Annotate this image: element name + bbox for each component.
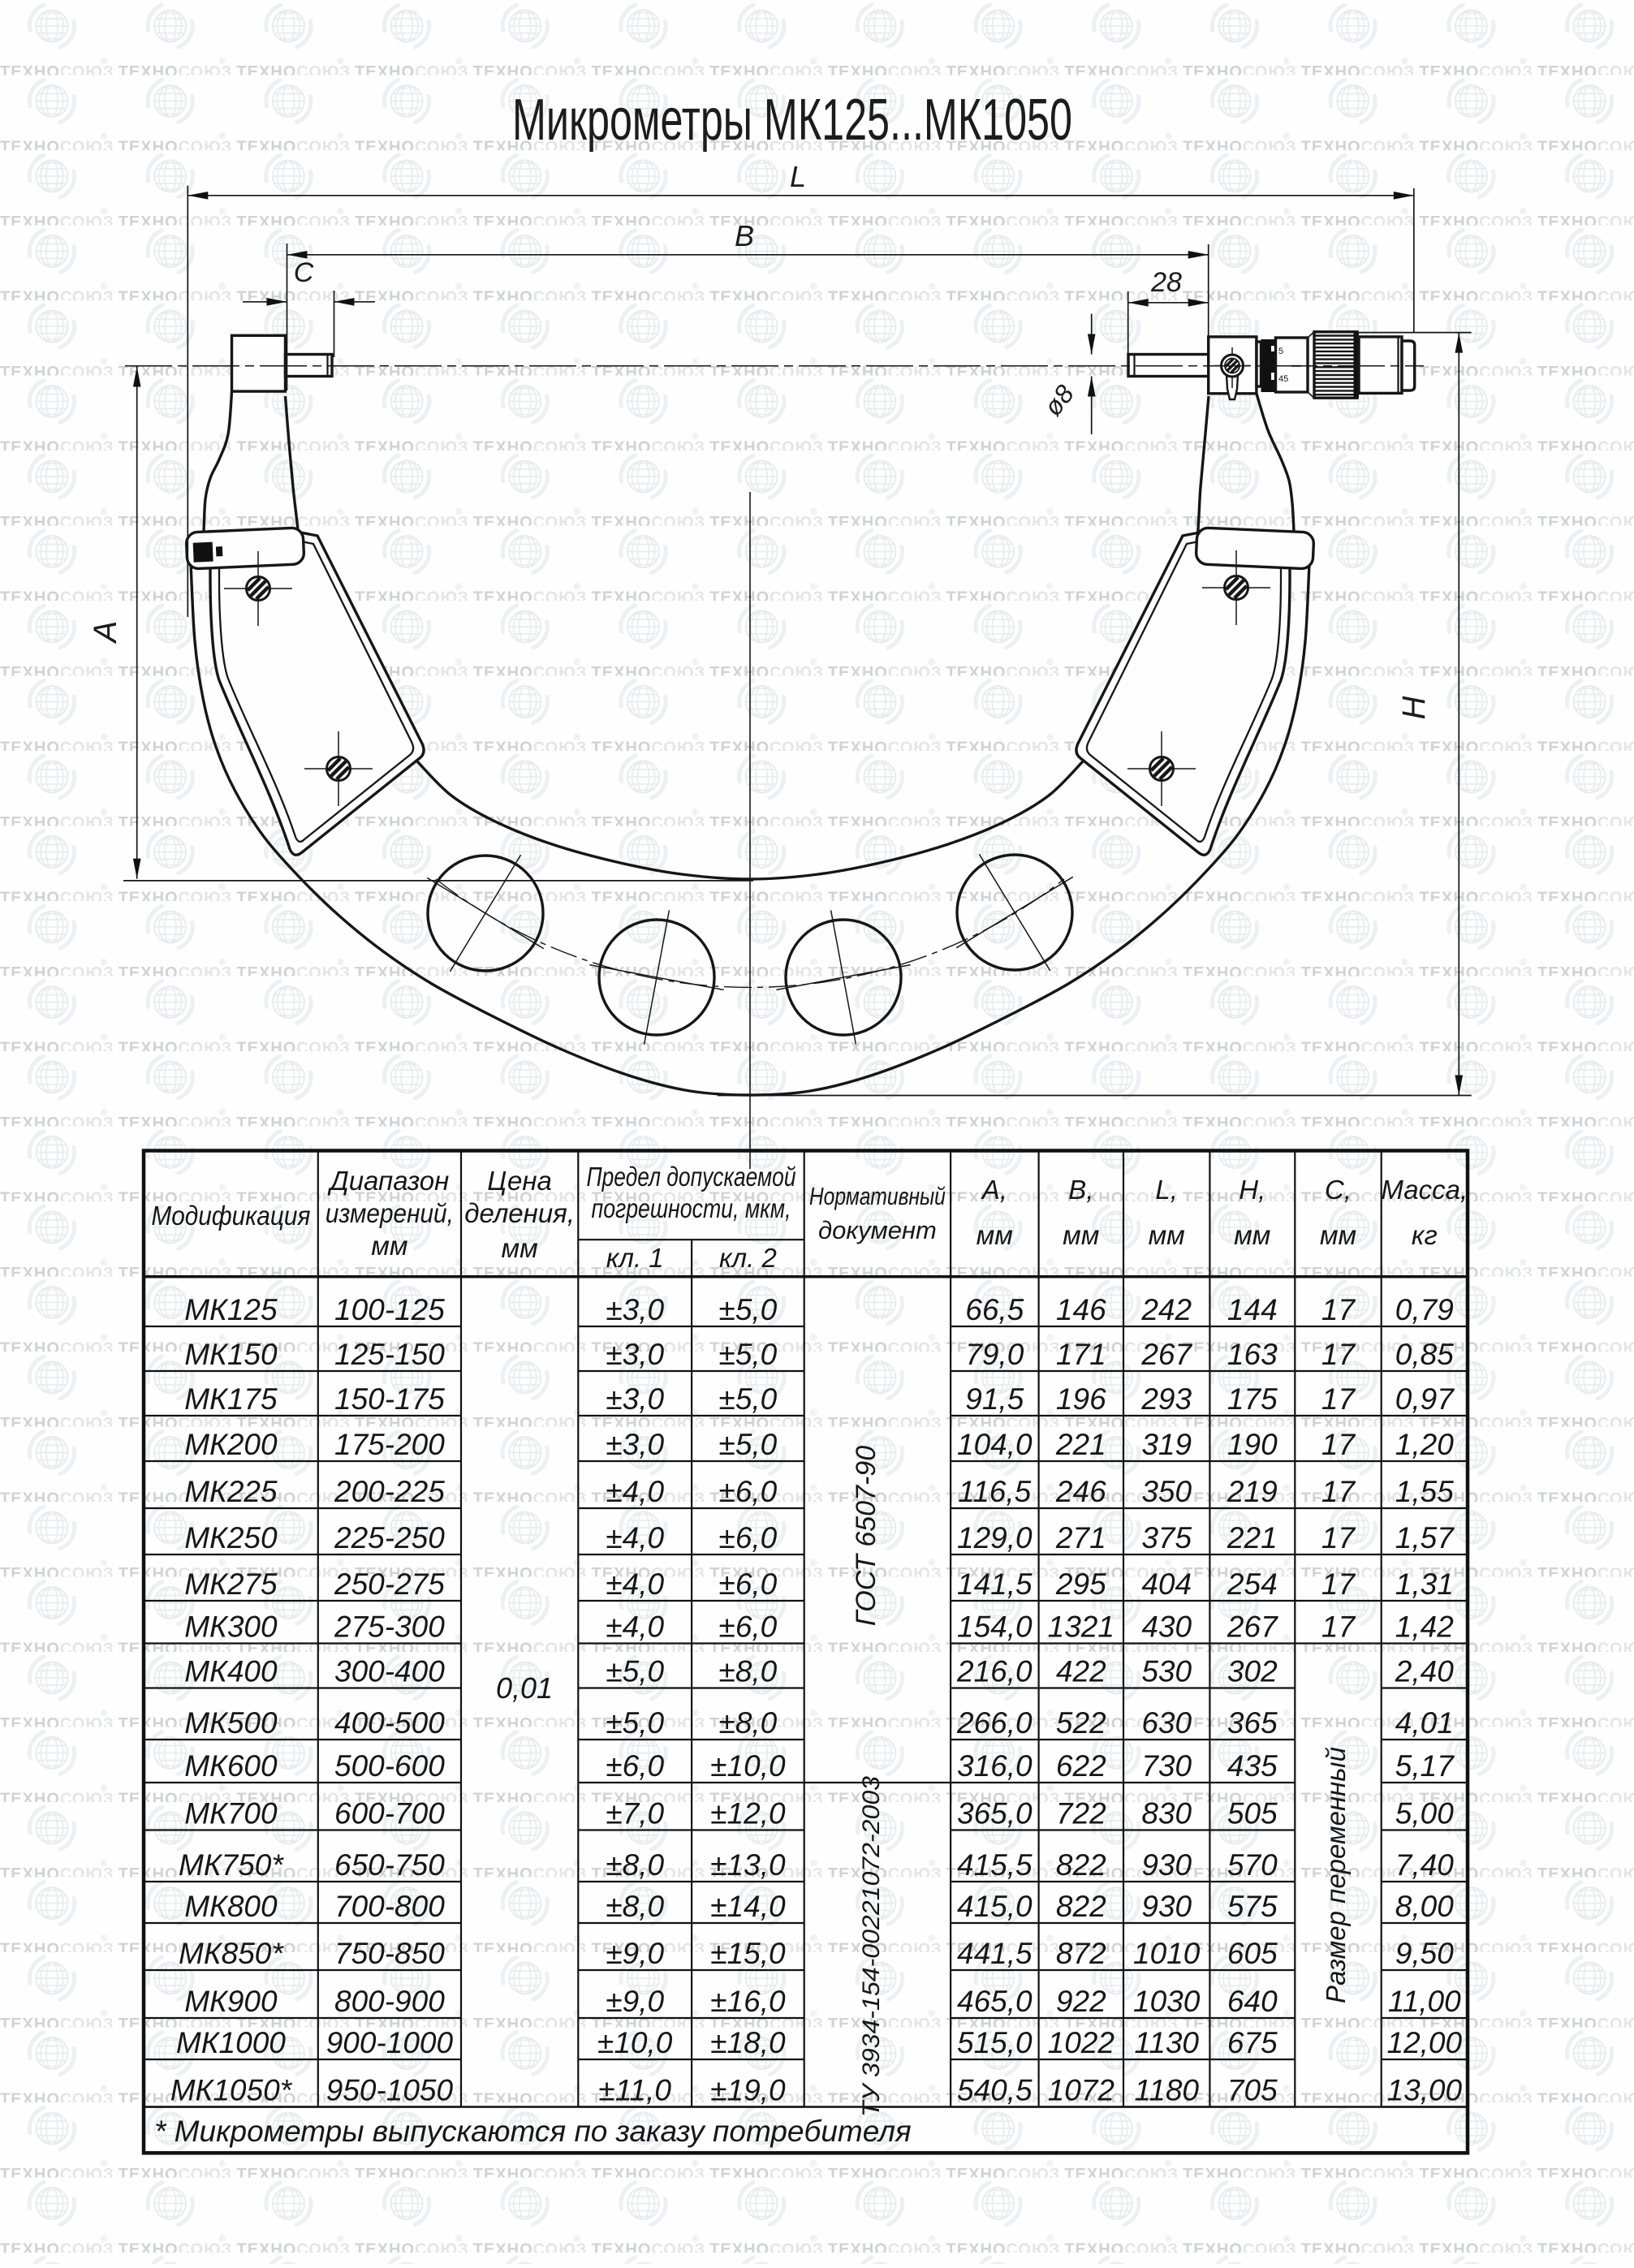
svg-text:246: 246 <box>1055 1475 1106 1508</box>
svg-text:±3,0: ±3,0 <box>606 1428 664 1461</box>
svg-text:ГОСТ 6507-90: ГОСТ 6507-90 <box>851 1446 882 1626</box>
svg-text:271: 271 <box>1055 1521 1106 1554</box>
svg-text:5,00: 5,00 <box>1395 1797 1454 1830</box>
svg-text:В,: В, <box>1068 1175 1093 1205</box>
svg-text:365: 365 <box>1227 1706 1278 1740</box>
svg-text:225-250: 225-250 <box>334 1521 445 1554</box>
svg-text:C: C <box>294 257 314 288</box>
svg-text:±13,0: ±13,0 <box>710 1848 786 1882</box>
svg-text:±5,0: ±5,0 <box>606 1706 664 1740</box>
svg-text:830: 830 <box>1141 1797 1192 1830</box>
svg-text:640: 640 <box>1227 1985 1278 2018</box>
svg-text:900-1000: 900-1000 <box>326 2026 454 2059</box>
svg-text:±5,0: ±5,0 <box>719 1293 778 1326</box>
svg-text:1,57: 1,57 <box>1395 1521 1455 1554</box>
svg-text:±6,0: ±6,0 <box>719 1521 778 1554</box>
svg-text:17: 17 <box>1321 1382 1356 1416</box>
svg-text:175: 175 <box>1227 1382 1278 1416</box>
svg-text:316,0: 316,0 <box>957 1749 1033 1783</box>
svg-text:мм: мм <box>977 1220 1013 1250</box>
svg-text:930: 930 <box>1141 1890 1192 1923</box>
svg-text:465,0: 465,0 <box>957 1985 1033 2018</box>
svg-text:116,5: 116,5 <box>958 1475 1031 1508</box>
svg-text:мм: мм <box>1320 1220 1356 1250</box>
svg-text:±4,0: ±4,0 <box>606 1475 664 1508</box>
svg-text:8,00: 8,00 <box>1395 1890 1454 1923</box>
svg-text:документ: документ <box>818 1216 937 1244</box>
svg-text:365,0: 365,0 <box>957 1797 1033 1830</box>
svg-text:822: 822 <box>1056 1848 1106 1882</box>
svg-text:9,50: 9,50 <box>1395 1937 1454 1970</box>
svg-text:404: 404 <box>1141 1567 1192 1601</box>
svg-text:МК750*: МК750* <box>179 1848 284 1882</box>
svg-text:±7,0: ±7,0 <box>606 1797 664 1830</box>
svg-text:L: L <box>790 160 806 193</box>
svg-text:±8,0: ±8,0 <box>606 1848 664 1882</box>
svg-text:275-300: 275-300 <box>334 1610 445 1644</box>
svg-text:±5,0: ±5,0 <box>719 1428 778 1461</box>
svg-text:150-175: 150-175 <box>334 1382 445 1416</box>
svg-text:1072: 1072 <box>1048 2074 1115 2107</box>
svg-text:12,00: 12,00 <box>1387 2026 1463 2059</box>
svg-text:129,0: 129,0 <box>957 1521 1033 1554</box>
svg-text:Размер переменный: Размер переменный <box>1321 1747 1351 2003</box>
svg-text:600-700: 600-700 <box>334 1797 445 1830</box>
svg-text:* Микрометры выпускаются по за: * Микрометры выпускаются по заказу потре… <box>154 2115 912 2148</box>
svg-text:±3,0: ±3,0 <box>606 1338 664 1371</box>
svg-text:242: 242 <box>1140 1293 1192 1326</box>
svg-text:540,5: 540,5 <box>957 2074 1033 2107</box>
svg-text:950-1050: 950-1050 <box>326 2074 454 2107</box>
svg-text:деления,: деления, <box>464 1198 575 1228</box>
svg-text:±5,0: ±5,0 <box>719 1338 778 1371</box>
svg-text:±6,0: ±6,0 <box>606 1749 664 1783</box>
svg-text:МК600: МК600 <box>184 1749 278 1783</box>
svg-text:11,00: 11,00 <box>1388 1985 1461 2018</box>
svg-text:675: 675 <box>1227 2026 1278 2059</box>
svg-text:±8,0: ±8,0 <box>719 1655 778 1688</box>
svg-text:L,: L, <box>1155 1175 1178 1205</box>
svg-text:1321: 1321 <box>1048 1610 1114 1644</box>
svg-text:ТУ 3934-154-00221072-2003: ТУ 3934-154-00221072-2003 <box>858 1776 885 2117</box>
svg-text:435: 435 <box>1227 1749 1278 1783</box>
svg-text:221: 221 <box>1055 1428 1106 1461</box>
svg-text:МК175: МК175 <box>184 1382 278 1416</box>
svg-text:79,0: 79,0 <box>965 1338 1024 1371</box>
svg-text:0,01: 0,01 <box>496 1671 553 1705</box>
svg-text:МК300: МК300 <box>184 1610 278 1644</box>
svg-text:154,0: 154,0 <box>957 1610 1033 1644</box>
svg-text:800-900: 800-900 <box>334 1985 445 2018</box>
svg-text:196: 196 <box>1056 1382 1106 1416</box>
svg-text:Цена: Цена <box>487 1166 552 1196</box>
svg-text:1,31: 1,31 <box>1395 1567 1454 1601</box>
svg-text:400-500: 400-500 <box>334 1706 445 1740</box>
svg-text:415,5: 415,5 <box>957 1848 1033 1882</box>
svg-text:кл. 1: кл. 1 <box>606 1243 664 1273</box>
svg-text:104,0: 104,0 <box>957 1428 1033 1461</box>
svg-text:171: 171 <box>1056 1338 1106 1371</box>
svg-text:570: 570 <box>1227 1848 1278 1882</box>
svg-text:мм: мм <box>371 1231 407 1261</box>
svg-text:±8,0: ±8,0 <box>606 1890 664 1923</box>
svg-text:254: 254 <box>1227 1567 1278 1601</box>
svg-text:1022: 1022 <box>1048 2026 1115 2059</box>
svg-text:Диапазон: Диапазон <box>326 1166 449 1196</box>
svg-text:17: 17 <box>1321 1567 1356 1601</box>
svg-text:930: 930 <box>1141 1848 1192 1882</box>
svg-text:МК850*: МК850* <box>179 1937 284 1970</box>
svg-text:730: 730 <box>1141 1749 1192 1783</box>
svg-text:±16,0: ±16,0 <box>710 1985 786 2018</box>
svg-text:190: 190 <box>1227 1428 1278 1461</box>
svg-text:319: 319 <box>1141 1428 1192 1461</box>
svg-text:650-750: 650-750 <box>334 1848 445 1882</box>
svg-text:630: 630 <box>1141 1706 1192 1740</box>
svg-text:±19,0: ±19,0 <box>710 2074 786 2107</box>
svg-text:МК125: МК125 <box>184 1293 278 1326</box>
svg-text:300-400: 300-400 <box>334 1655 445 1688</box>
svg-text:±14,0: ±14,0 <box>710 1890 786 1923</box>
svg-text:5: 5 <box>1278 347 1283 356</box>
svg-text:А,: А, <box>981 1175 1007 1205</box>
svg-text:515,0: 515,0 <box>957 2026 1033 2059</box>
svg-text:705: 705 <box>1227 2074 1278 2107</box>
svg-text:295: 295 <box>1055 1567 1106 1601</box>
svg-text:С,: С, <box>1325 1175 1352 1205</box>
svg-text:146: 146 <box>1056 1293 1106 1326</box>
svg-text:1180: 1180 <box>1134 2074 1199 2107</box>
svg-text:2,40: 2,40 <box>1395 1655 1454 1688</box>
svg-text:1,20: 1,20 <box>1395 1428 1454 1461</box>
svg-text:622: 622 <box>1056 1749 1106 1783</box>
svg-text:922: 922 <box>1056 1985 1106 2018</box>
svg-text:28: 28 <box>1150 267 1182 298</box>
svg-text:кг: кг <box>1412 1220 1438 1250</box>
svg-text:17: 17 <box>1321 1428 1356 1461</box>
svg-text:441,5: 441,5 <box>957 1937 1033 1970</box>
svg-text:216,0: 216,0 <box>956 1655 1033 1688</box>
svg-text:0,85: 0,85 <box>1395 1338 1454 1371</box>
svg-text:13,00: 13,00 <box>1387 2074 1463 2107</box>
svg-text:17: 17 <box>1321 1293 1356 1326</box>
svg-text:700-800: 700-800 <box>334 1890 445 1923</box>
svg-text:141,5: 141,5 <box>957 1567 1033 1601</box>
svg-text:±6,0: ±6,0 <box>719 1567 778 1601</box>
svg-text:А: А <box>88 621 123 645</box>
svg-text:кл. 2: кл. 2 <box>719 1243 777 1273</box>
svg-text:7,40: 7,40 <box>1395 1848 1454 1882</box>
svg-text:±5,0: ±5,0 <box>719 1382 778 1416</box>
svg-text:±3,0: ±3,0 <box>606 1293 664 1326</box>
svg-text:200-225: 200-225 <box>334 1475 445 1508</box>
svg-text:221: 221 <box>1227 1521 1278 1554</box>
svg-text:±3,0: ±3,0 <box>606 1382 664 1416</box>
svg-text:163: 163 <box>1227 1338 1278 1371</box>
svg-text:погрешности, мкм,: погрешности, мкм, <box>592 1193 791 1223</box>
svg-text:750-850: 750-850 <box>334 1937 445 1970</box>
svg-text:МК800: МК800 <box>184 1890 278 1923</box>
svg-text:350: 350 <box>1141 1475 1192 1508</box>
svg-text:430: 430 <box>1141 1610 1192 1644</box>
svg-text:415,0: 415,0 <box>957 1890 1033 1923</box>
svg-text:175-200: 175-200 <box>334 1428 445 1461</box>
svg-text:±6,0: ±6,0 <box>719 1475 778 1508</box>
svg-text:267: 267 <box>1140 1338 1192 1371</box>
svg-text:575: 575 <box>1227 1890 1278 1923</box>
svg-text:302: 302 <box>1227 1655 1278 1688</box>
svg-text:5,17: 5,17 <box>1395 1749 1455 1783</box>
svg-text:±4,0: ±4,0 <box>606 1567 664 1601</box>
svg-text:МК500: МК500 <box>184 1706 278 1740</box>
svg-text:4,01: 4,01 <box>1395 1706 1454 1740</box>
svg-text:17: 17 <box>1321 1338 1356 1371</box>
svg-text:0,97: 0,97 <box>1395 1382 1455 1416</box>
svg-text:±10,0: ±10,0 <box>710 1749 786 1783</box>
svg-text:45: 45 <box>1278 374 1288 384</box>
svg-text:Н,: Н, <box>1239 1175 1265 1205</box>
svg-text:МК900: МК900 <box>184 1985 278 2018</box>
svg-text:МК1050*: МК1050* <box>170 2074 293 2107</box>
svg-text:Н: Н <box>1396 696 1432 719</box>
svg-text:МК275: МК275 <box>184 1567 278 1601</box>
svg-text:МК150: МК150 <box>184 1338 278 1371</box>
svg-text:±8,0: ±8,0 <box>719 1706 778 1740</box>
svg-text:1,42: 1,42 <box>1395 1610 1454 1644</box>
svg-text:375: 375 <box>1141 1521 1192 1554</box>
svg-text:МК225: МК225 <box>184 1475 278 1508</box>
svg-text:±9,0: ±9,0 <box>606 1937 664 1970</box>
svg-text:522: 522 <box>1056 1706 1106 1740</box>
svg-text:605: 605 <box>1227 1937 1278 1970</box>
svg-text:±4,0: ±4,0 <box>606 1610 664 1644</box>
svg-text:250-275: 250-275 <box>334 1567 445 1601</box>
svg-text:±12,0: ±12,0 <box>710 1797 786 1830</box>
svg-text:17: 17 <box>1321 1475 1356 1508</box>
svg-text:500-600: 500-600 <box>334 1749 445 1783</box>
svg-text:Модификация: Модификация <box>151 1201 310 1231</box>
svg-text:125-150: 125-150 <box>334 1338 445 1371</box>
svg-text:0,79: 0,79 <box>1395 1293 1454 1326</box>
svg-text:±4,0: ±4,0 <box>606 1521 664 1554</box>
svg-text:мм: мм <box>1149 1220 1185 1250</box>
svg-text:B: B <box>735 219 754 252</box>
svg-text:100-125: 100-125 <box>334 1293 445 1326</box>
svg-text:266,0: 266,0 <box>956 1706 1033 1740</box>
svg-text:мм: мм <box>501 1233 537 1263</box>
svg-text:17: 17 <box>1321 1610 1356 1644</box>
svg-text:Масса,: Масса, <box>1381 1175 1468 1205</box>
svg-text:1030: 1030 <box>1133 1985 1201 2018</box>
svg-text:МК200: МК200 <box>184 1428 278 1461</box>
svg-text:МК700: МК700 <box>184 1797 278 1830</box>
svg-text:144: 144 <box>1227 1293 1278 1326</box>
svg-text:293: 293 <box>1140 1382 1192 1416</box>
svg-text:±11,0: ±11,0 <box>598 2074 671 2107</box>
svg-text:±5,0: ±5,0 <box>606 1655 664 1688</box>
svg-text:±18,0: ±18,0 <box>710 2026 786 2059</box>
svg-text:Предел допускаемой: Предел допускаемой <box>587 1162 796 1192</box>
svg-text:±6,0: ±6,0 <box>719 1610 778 1644</box>
svg-text:1,55: 1,55 <box>1395 1475 1454 1508</box>
svg-text:Нормативный: Нормативный <box>809 1182 946 1210</box>
svg-text:872: 872 <box>1056 1937 1106 1970</box>
svg-text:1010: 1010 <box>1133 1937 1201 1970</box>
svg-text:измерений,: измерений, <box>326 1198 454 1228</box>
svg-text:822: 822 <box>1056 1890 1106 1923</box>
svg-text:МК400: МК400 <box>184 1655 278 1688</box>
svg-text:±15,0: ±15,0 <box>710 1937 786 1970</box>
svg-text:±9,0: ±9,0 <box>606 1985 664 2018</box>
svg-text:66,5: 66,5 <box>965 1293 1024 1326</box>
svg-text:219: 219 <box>1227 1475 1278 1508</box>
svg-text:505: 505 <box>1227 1797 1278 1830</box>
svg-text:мм: мм <box>1234 1220 1270 1250</box>
svg-text:530: 530 <box>1141 1655 1192 1688</box>
svg-text:МК1000: МК1000 <box>176 2026 286 2059</box>
svg-text:267: 267 <box>1227 1610 1278 1644</box>
svg-text:МК250: МК250 <box>184 1521 278 1554</box>
svg-text:1130: 1130 <box>1134 2026 1199 2059</box>
svg-text:мм: мм <box>1063 1220 1099 1250</box>
svg-text:91,5: 91,5 <box>965 1382 1024 1416</box>
svg-text:Микрометры МК125...МК1050: Микрометры МК125...МК1050 <box>512 88 1072 153</box>
svg-text:17: 17 <box>1321 1521 1356 1554</box>
svg-text:±10,0: ±10,0 <box>597 2026 673 2059</box>
svg-text:422: 422 <box>1056 1655 1106 1688</box>
svg-text:722: 722 <box>1056 1797 1106 1830</box>
